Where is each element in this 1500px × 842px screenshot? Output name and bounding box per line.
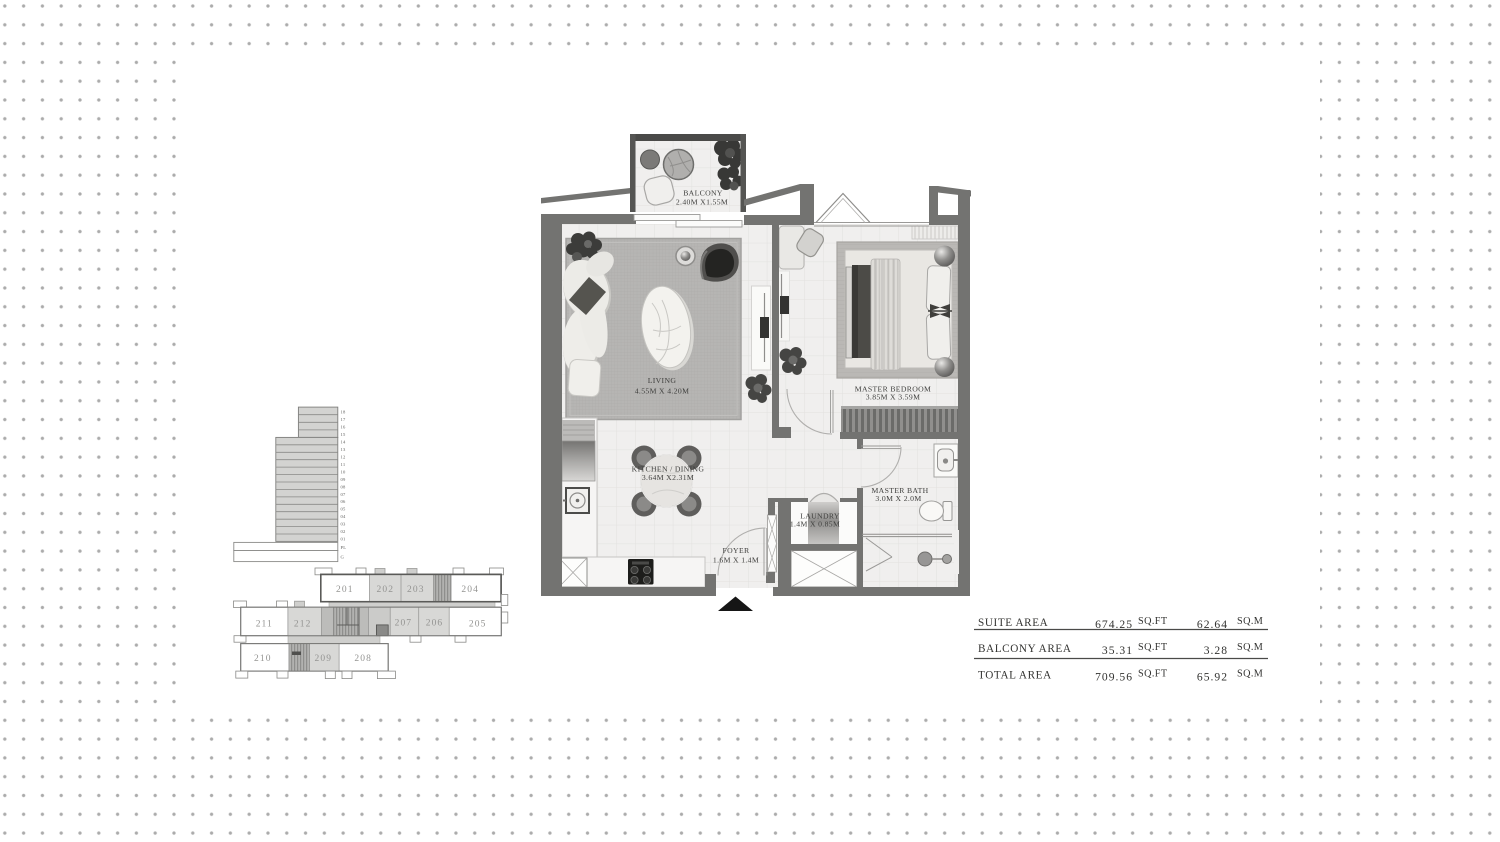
svg-text:17: 17 bbox=[341, 417, 346, 422]
svg-text:SQ.FT: SQ.FT bbox=[1138, 642, 1168, 653]
svg-text:210: 210 bbox=[254, 654, 272, 664]
svg-text:12: 12 bbox=[341, 455, 346, 460]
svg-text:208: 208 bbox=[354, 654, 372, 664]
svg-text:06: 06 bbox=[341, 499, 346, 504]
svg-text:15: 15 bbox=[341, 432, 346, 437]
svg-text:02: 02 bbox=[341, 529, 346, 534]
svg-text:205: 205 bbox=[469, 620, 487, 630]
svg-text:209: 209 bbox=[315, 654, 333, 664]
svg-text:207: 207 bbox=[395, 619, 413, 629]
svg-text:2.40M X1.55M: 2.40M X1.55M bbox=[676, 198, 728, 207]
svg-text:04: 04 bbox=[341, 514, 346, 519]
svg-text:SQ.FT: SQ.FT bbox=[1138, 669, 1168, 680]
svg-text:16: 16 bbox=[341, 425, 346, 430]
svg-text:SUITE AREA: SUITE AREA bbox=[978, 617, 1048, 629]
svg-text:05: 05 bbox=[341, 507, 346, 512]
svg-text:3.64M X2.31M: 3.64M X2.31M bbox=[642, 473, 694, 482]
svg-text:FOYER: FOYER bbox=[723, 546, 750, 555]
svg-text:07: 07 bbox=[341, 492, 346, 497]
svg-text:14: 14 bbox=[341, 440, 346, 445]
svg-text:3.85M X 3.59M: 3.85M X 3.59M bbox=[866, 393, 921, 402]
svg-text:211: 211 bbox=[256, 620, 273, 630]
svg-text:204: 204 bbox=[461, 585, 479, 595]
svg-text:SQ.M: SQ.M bbox=[1237, 669, 1263, 680]
svg-text:LIVING: LIVING bbox=[648, 376, 677, 385]
svg-text:SQ.M: SQ.M bbox=[1237, 616, 1263, 627]
svg-text:BALCONY AREA: BALCONY AREA bbox=[978, 643, 1072, 655]
svg-text:3.28: 3.28 bbox=[1204, 644, 1228, 657]
svg-text:01: 01 bbox=[341, 536, 346, 541]
svg-text:11: 11 bbox=[341, 462, 346, 467]
svg-text:202: 202 bbox=[377, 585, 395, 595]
svg-text:SQ.M: SQ.M bbox=[1237, 642, 1263, 653]
svg-text:TOTAL AREA: TOTAL AREA bbox=[978, 670, 1052, 682]
svg-text:03: 03 bbox=[341, 522, 346, 527]
svg-text:206: 206 bbox=[426, 619, 444, 629]
svg-text:4.55M X 4.20M: 4.55M X 4.20M bbox=[635, 387, 690, 396]
svg-text:08: 08 bbox=[341, 484, 346, 489]
svg-text:62.64: 62.64 bbox=[1197, 618, 1228, 631]
svg-text:PL: PL bbox=[341, 545, 347, 550]
svg-text:10: 10 bbox=[341, 470, 346, 475]
svg-text:201: 201 bbox=[336, 585, 354, 595]
svg-text:SQ.FT: SQ.FT bbox=[1138, 616, 1168, 627]
svg-text:35.31: 35.31 bbox=[1102, 644, 1133, 657]
svg-text:212: 212 bbox=[294, 620, 312, 630]
svg-text:13: 13 bbox=[341, 447, 346, 452]
svg-text:709.56: 709.56 bbox=[1095, 671, 1133, 684]
svg-text:BALCONY: BALCONY bbox=[683, 189, 723, 198]
svg-text:65.92: 65.92 bbox=[1197, 671, 1228, 684]
svg-text:3.0M X 2.0M: 3.0M X 2.0M bbox=[875, 494, 921, 503]
svg-text:203: 203 bbox=[407, 585, 425, 595]
svg-text:09: 09 bbox=[341, 477, 346, 482]
svg-text:1.6M X 1.4M: 1.6M X 1.4M bbox=[713, 556, 759, 565]
svg-text:18: 18 bbox=[341, 410, 346, 415]
svg-text:G: G bbox=[341, 555, 345, 560]
svg-text:674.25: 674.25 bbox=[1095, 618, 1133, 631]
svg-text:1.4M X 0.85M: 1.4M X 0.85M bbox=[790, 520, 840, 529]
